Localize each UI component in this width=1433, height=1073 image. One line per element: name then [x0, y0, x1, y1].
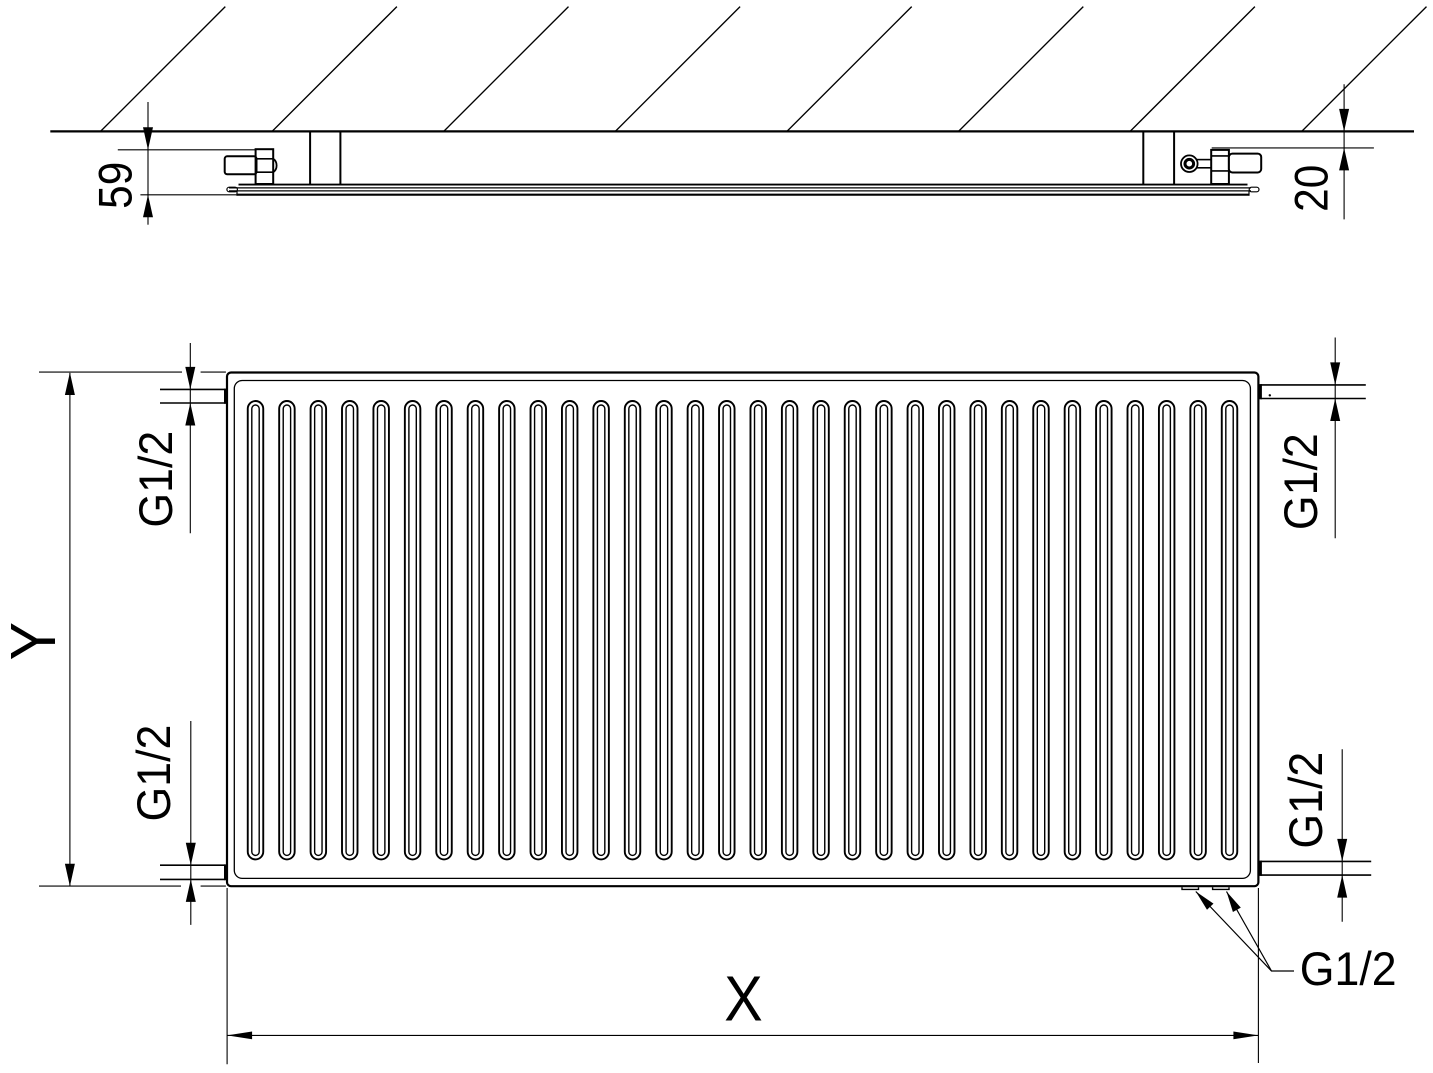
svg-text:Y: Y: [0, 622, 69, 660]
svg-text:59: 59: [91, 162, 143, 209]
svg-text:G1/2: G1/2: [130, 431, 182, 528]
svg-text:G1/2: G1/2: [128, 725, 180, 822]
svg-text:G1/2: G1/2: [1300, 943, 1397, 995]
svg-text:G1/2: G1/2: [1275, 433, 1327, 530]
svg-text:20: 20: [1287, 165, 1339, 212]
svg-text:X: X: [724, 963, 762, 1034]
svg-text:G1/2: G1/2: [1280, 752, 1332, 849]
